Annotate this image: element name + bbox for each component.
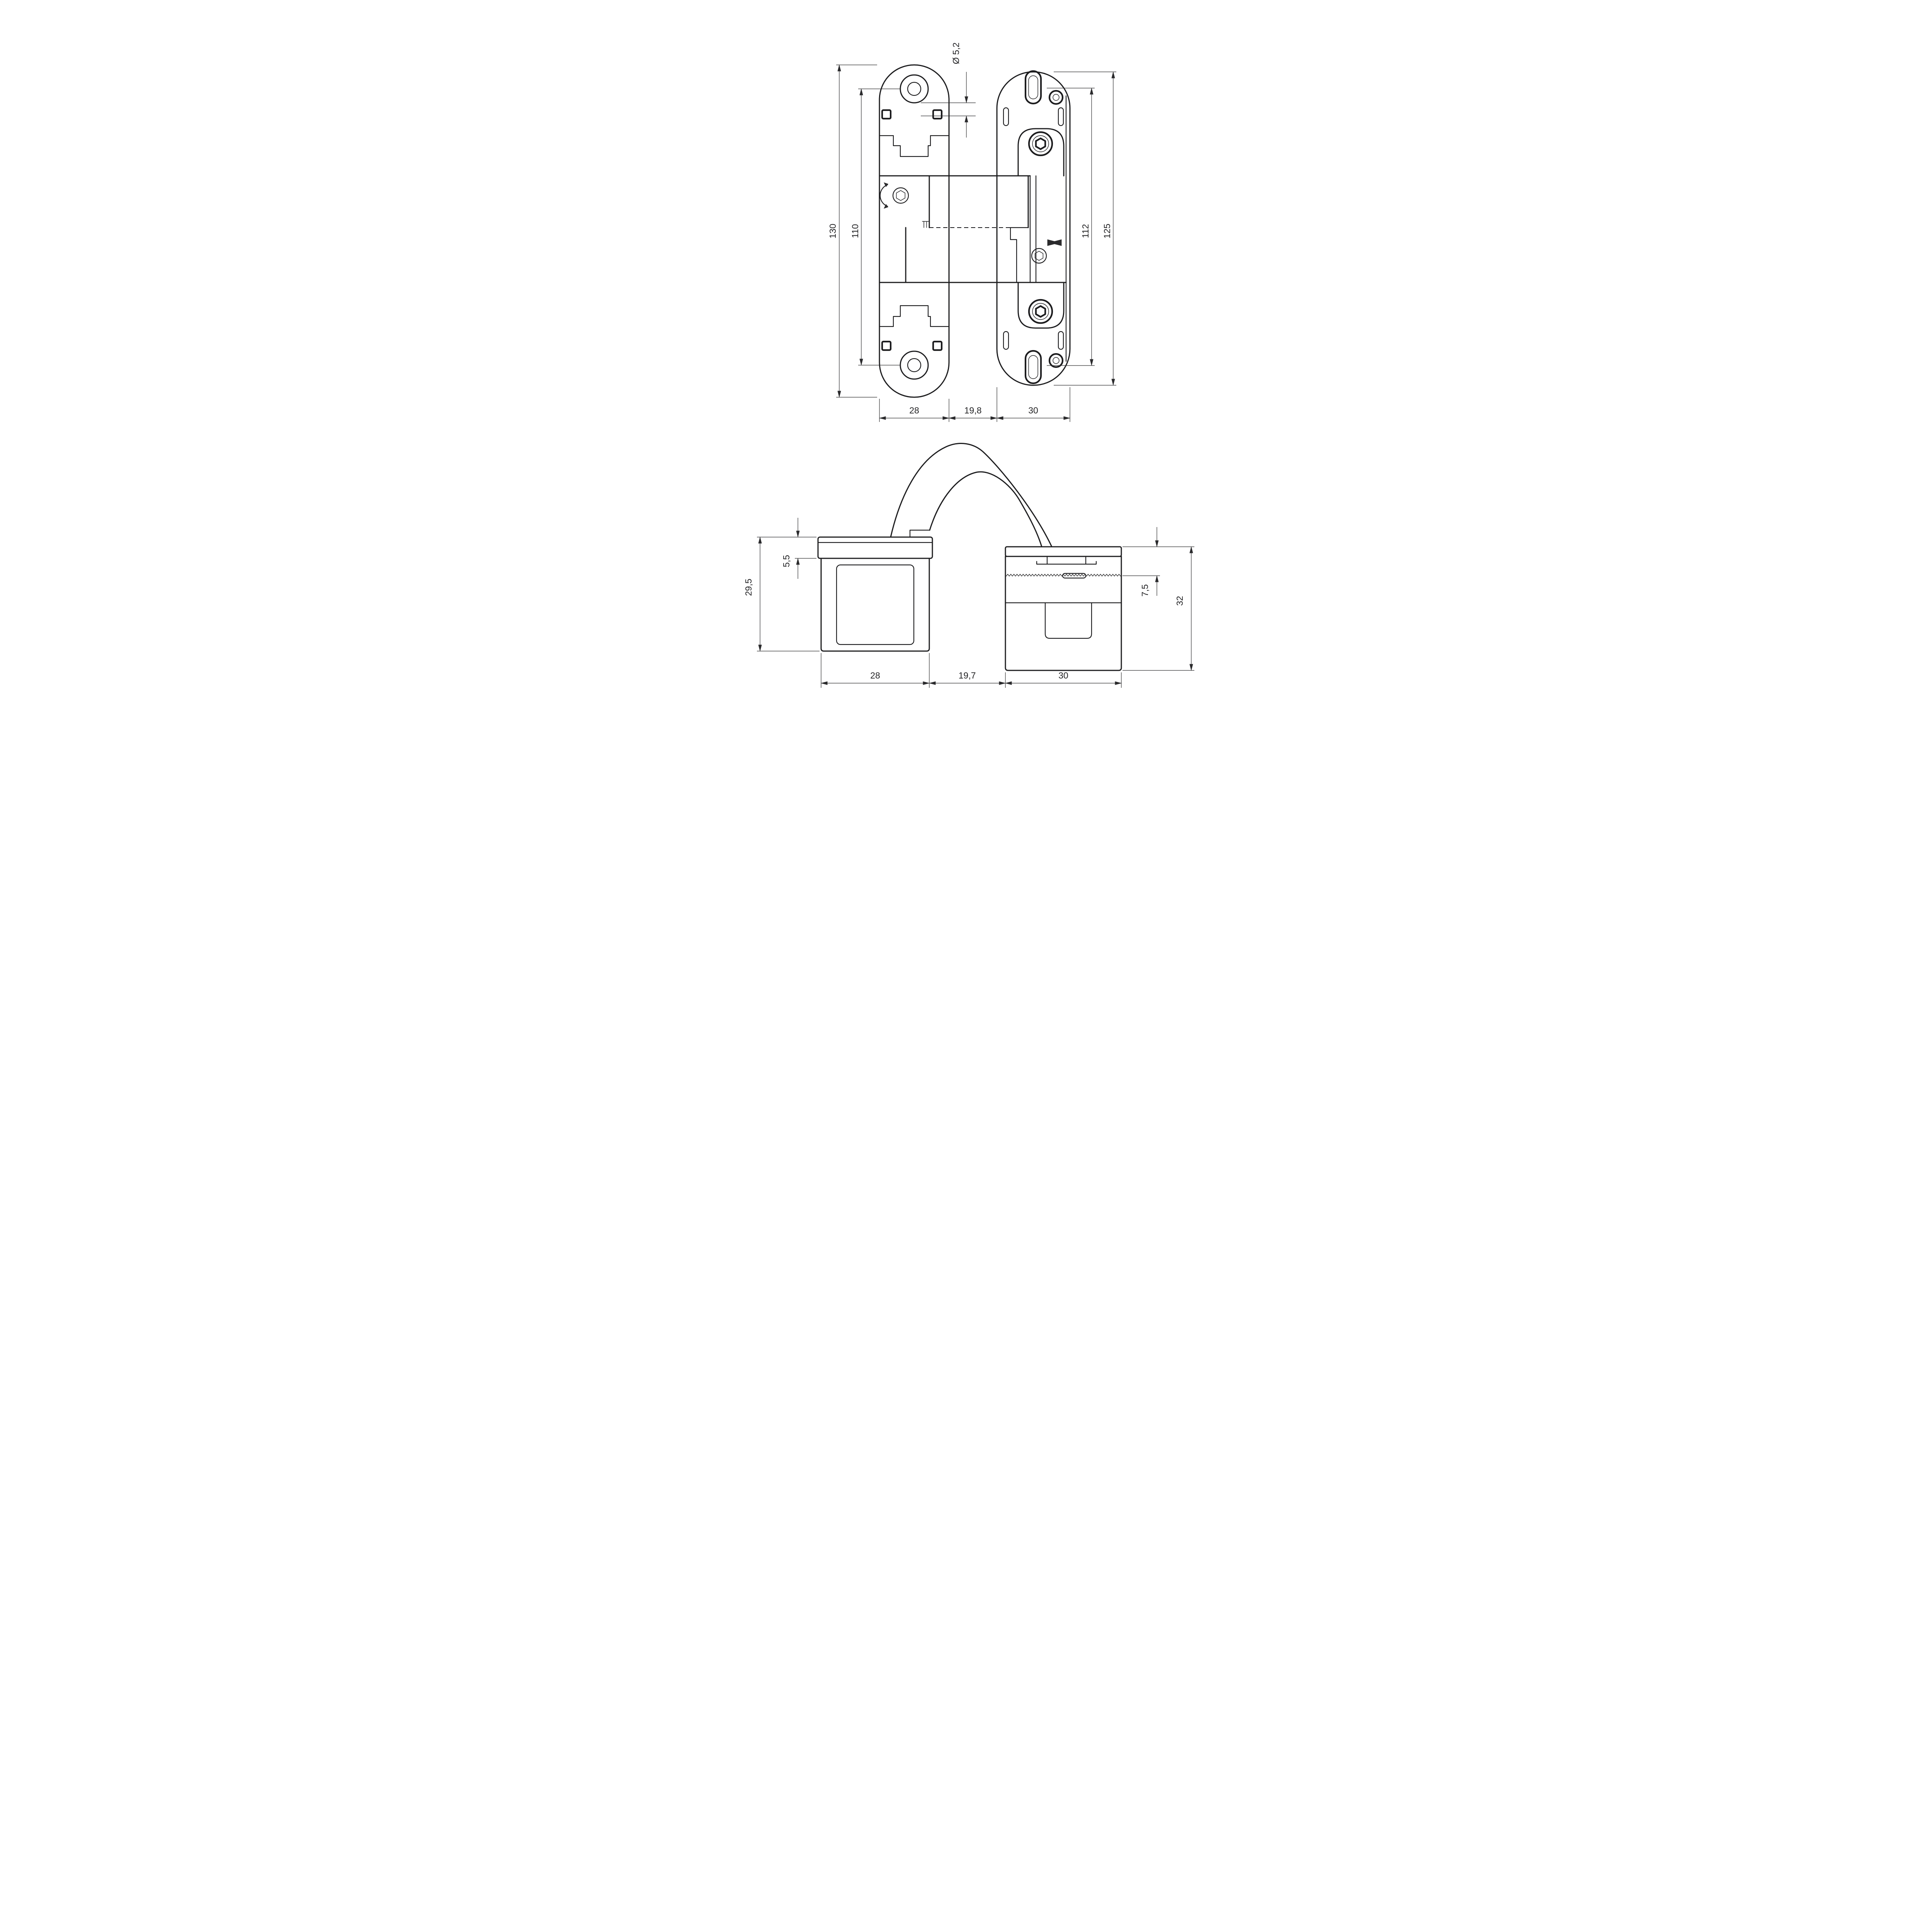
dim-right-cap-depth: 7,5: [1140, 584, 1150, 597]
left-block-cap: [818, 537, 932, 558]
central-pivot-arm: [880, 176, 1066, 282]
hinge-technical-drawing: 130 110 Ø 5,2 112 125: [705, 0, 1227, 696]
dim-slot-distance: 112: [1080, 224, 1090, 238]
top-pilot-hole: [1049, 91, 1063, 104]
right-block-notch: [1045, 603, 1092, 638]
vent-slot: [1058, 332, 1063, 349]
dim-left-block-width: 28: [870, 670, 880, 680]
dim-right-block-height: 32: [1175, 596, 1185, 606]
height-adjustment-screw: [893, 188, 908, 203]
dim-hole-diameter: Ø 5,2: [951, 43, 961, 64]
rotation-arrow: [880, 185, 888, 206]
right-block-cap: [1005, 547, 1121, 556]
top-screw-hole: [900, 75, 928, 103]
dim-right-plate-width: 30: [1028, 405, 1038, 415]
right-mounting-plate: [997, 71, 1070, 385]
top-view-dimensions: 130 110 Ø 5,2 112 125: [828, 43, 1116, 422]
cap-tab-detail: [1037, 556, 1096, 564]
square-hole: [882, 342, 891, 350]
square-hole: [882, 110, 891, 119]
vent-slot: [1003, 332, 1009, 349]
vent-slot: [1003, 108, 1009, 126]
left-mortise-block: [818, 537, 932, 651]
insert-body-bottom: [1018, 282, 1064, 328]
dim-gap-width: 19,7: [959, 670, 976, 680]
dim-center-gap: 19,8: [964, 405, 982, 415]
dim-left-cap-depth: 5,5: [781, 555, 791, 567]
top-view: 130 110 Ø 5,2 112 125: [828, 43, 1116, 422]
left-block-mortise: [837, 565, 914, 645]
top-pocket-notch: [893, 136, 930, 156]
hex-bolt-bottom: [1029, 300, 1052, 323]
hinge-strap: [891, 444, 1052, 547]
bottom-pocket-notch: [893, 306, 930, 327]
dim-left-block-height: 29,5: [743, 579, 753, 596]
left-mounting-plate: [879, 65, 949, 397]
dim-right-block-width: 30: [1058, 670, 1068, 680]
strap-inner-curve: [930, 472, 1042, 547]
bottom-screw-hole: [900, 351, 928, 379]
left-block-body: [821, 558, 929, 651]
right-mortise-block: [1005, 547, 1121, 670]
dim-screw-distance: 110: [850, 224, 860, 238]
side-view: 29,5 5,5 7,5 32 28 19,7: [743, 444, 1194, 688]
hex-bolt-top: [1029, 132, 1052, 155]
dim-right-plate-height: 125: [1102, 224, 1112, 238]
dim-left-plate-height: 130: [828, 224, 838, 238]
square-hole: [933, 110, 942, 119]
strap-foot-tab: [910, 530, 930, 537]
lateral-adjustment-screw: [1032, 248, 1046, 263]
dim-left-plate-width: 28: [909, 405, 919, 415]
strap-outer-curve: [891, 444, 1052, 547]
arm-detail-ticks: [922, 221, 929, 228]
arm-step: [1010, 228, 1017, 282]
square-hole: [933, 342, 942, 350]
drawing-page: 130 110 Ø 5,2 112 125: [705, 0, 1227, 696]
bottom-pilot-hole: [1049, 354, 1063, 367]
hex-socket: [896, 190, 905, 201]
vent-slot: [1058, 108, 1063, 126]
side-view-dimensions: 29,5 5,5 7,5 32 28 19,7: [743, 518, 1194, 688]
